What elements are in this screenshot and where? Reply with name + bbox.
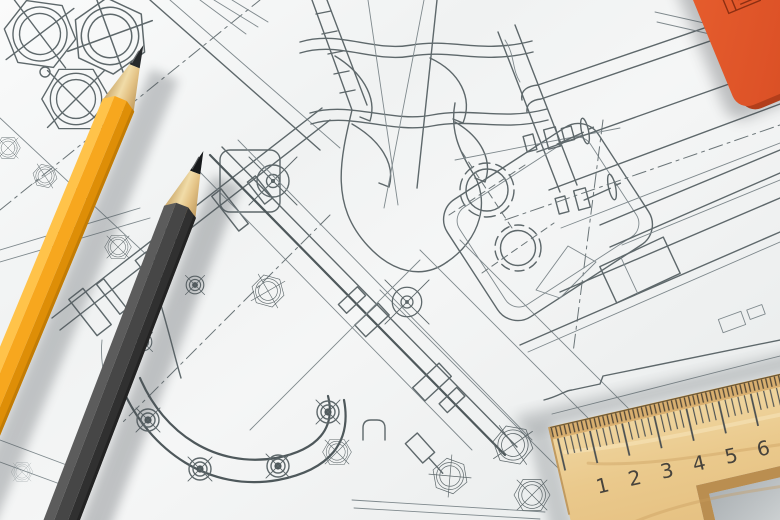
scene-canvas: 1 2 3 4 5 6 7 [0, 0, 780, 520]
blueprint-scene: 1 2 3 4 5 6 7 [0, 0, 780, 520]
